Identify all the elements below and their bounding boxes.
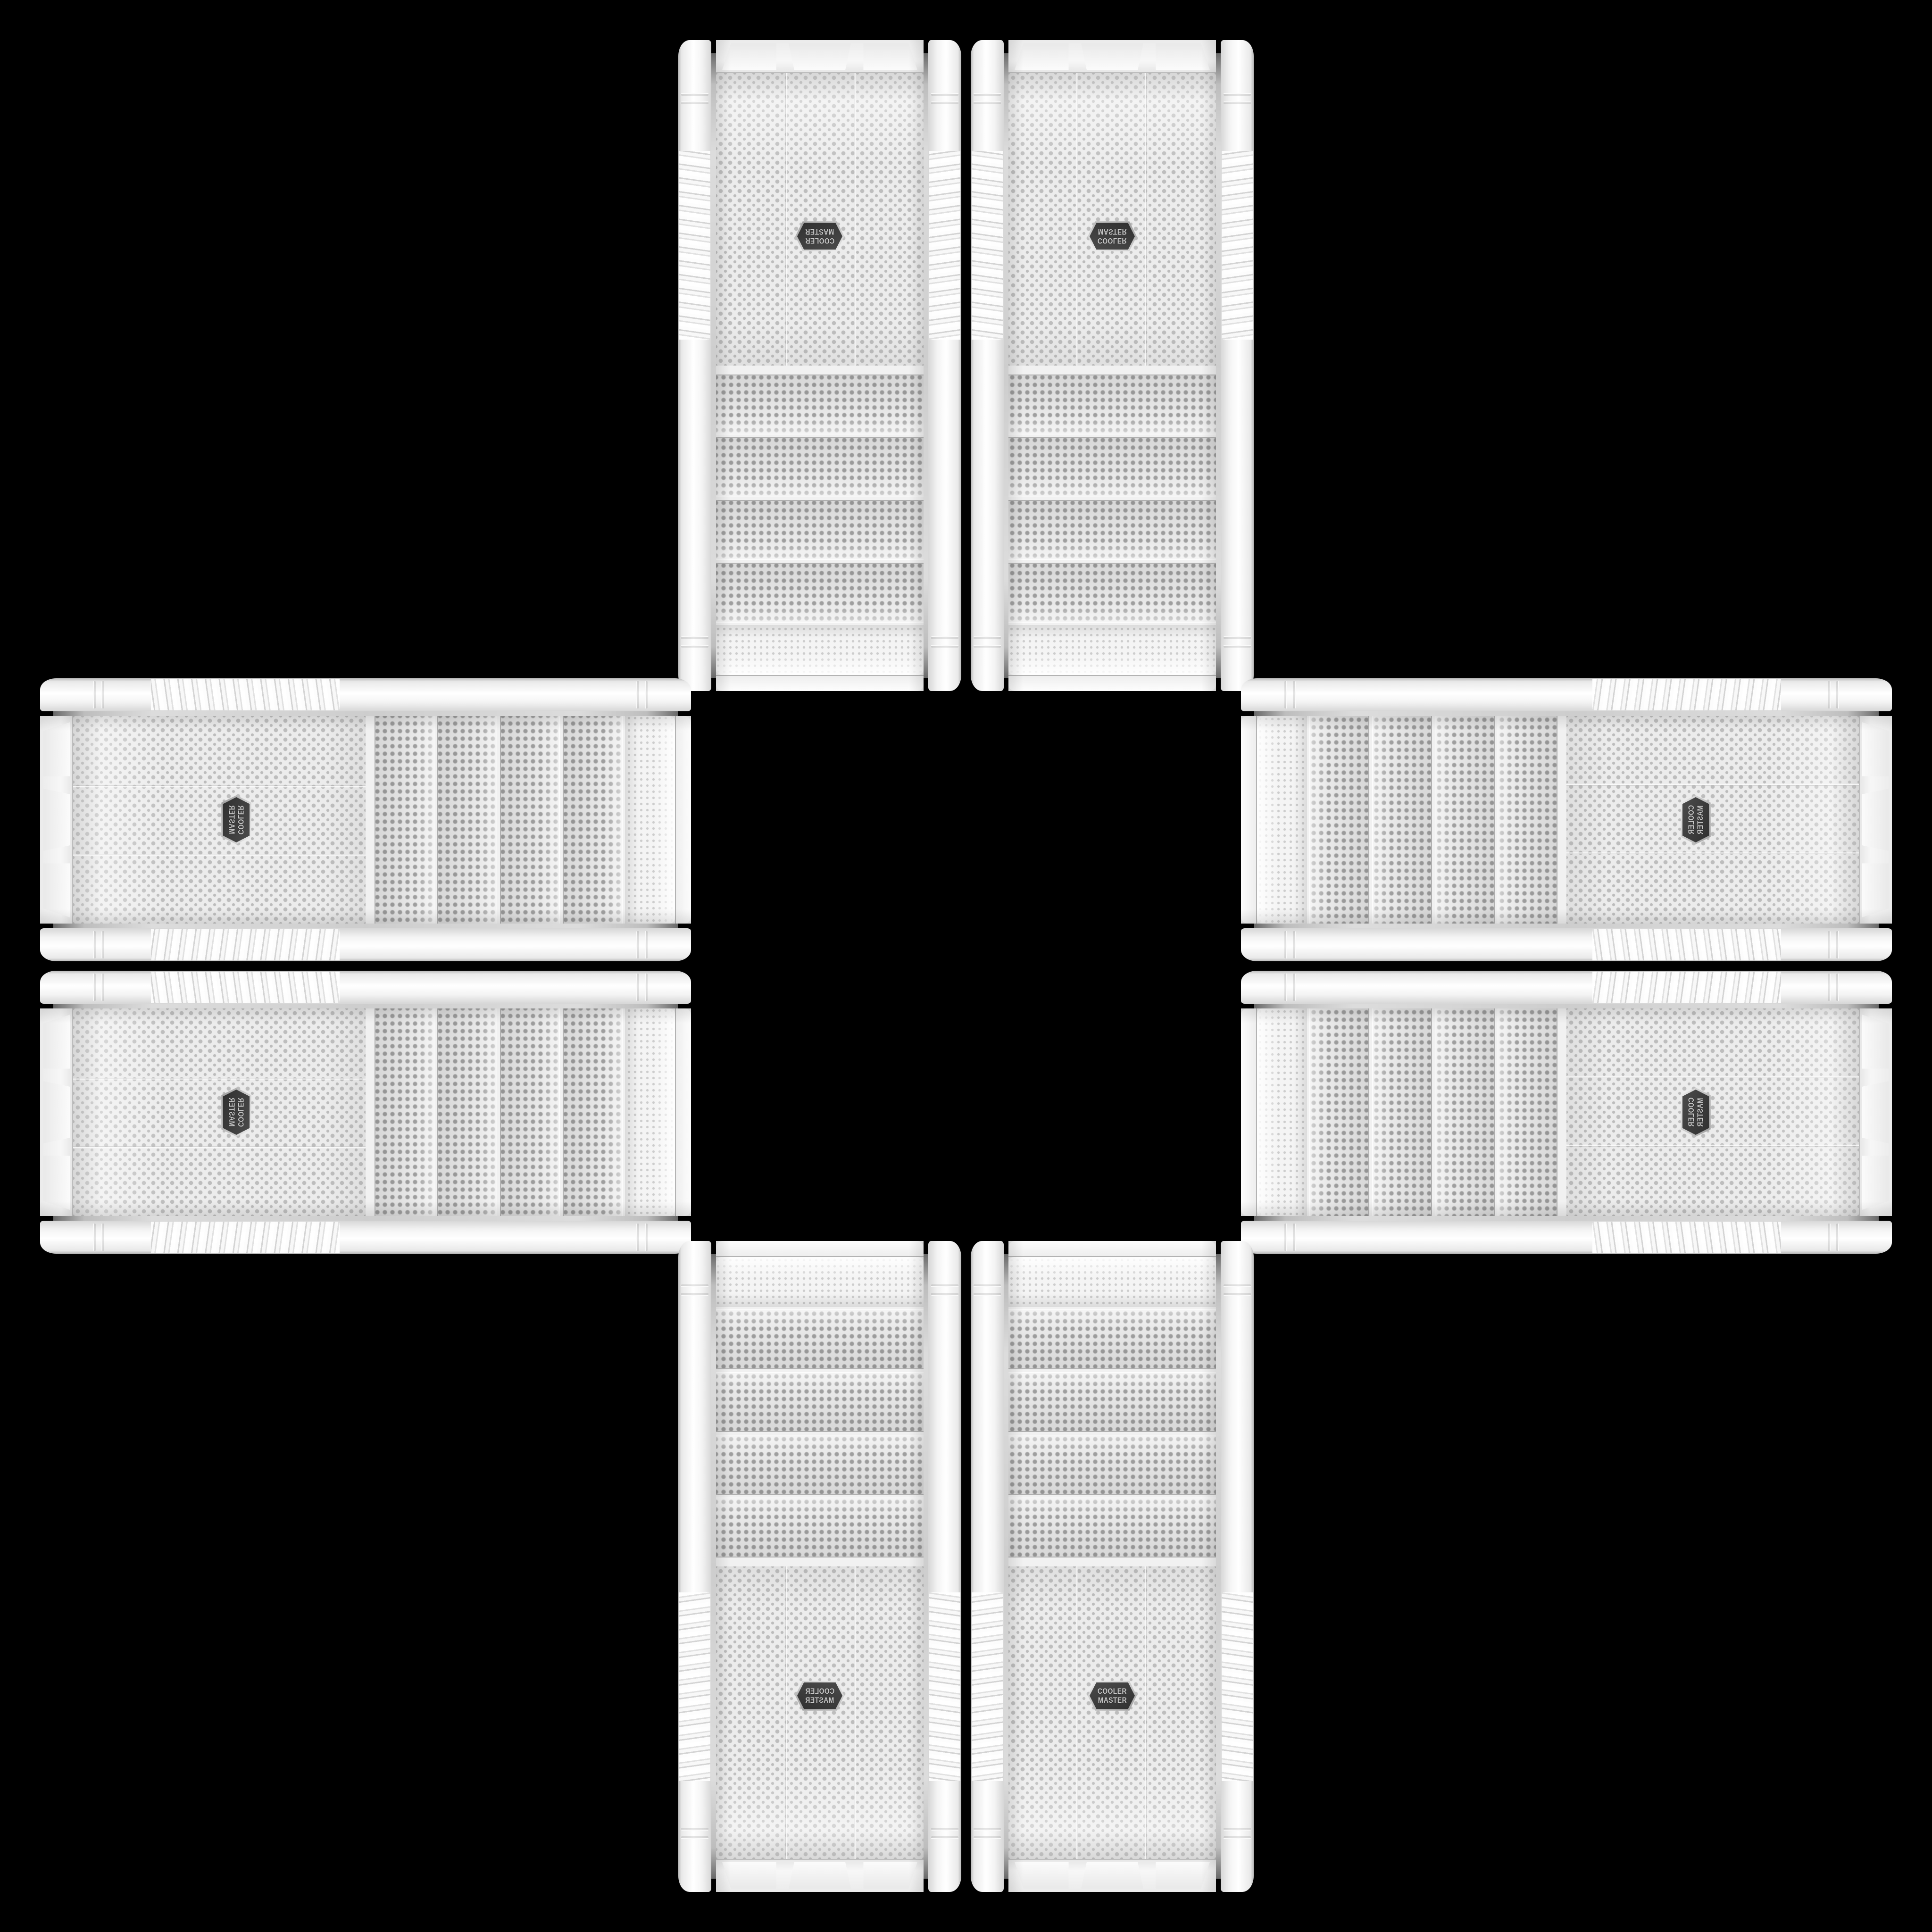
side-trim-right	[1221, 40, 1254, 691]
trim-groove	[93, 974, 96, 1001]
trim-groove	[931, 636, 958, 639]
bay-strip	[716, 375, 924, 434]
bottom-cap	[40, 1008, 73, 1216]
trim-groove	[101, 931, 104, 958]
trim-groove	[1224, 1284, 1251, 1287]
cap-facet	[1015, 1862, 1068, 1889]
front-panel: COOLER MASTER	[1241, 1008, 1892, 1216]
bottom-cap	[716, 1859, 924, 1892]
badge-text-line2: MASTER	[227, 1098, 236, 1126]
top-rim	[1241, 1008, 1257, 1216]
mesh-column-seam	[1076, 1566, 1078, 1860]
bay-strip	[1373, 716, 1431, 924]
chrome-seam-left	[53, 924, 678, 928]
cap-facet	[1862, 789, 1889, 851]
trim-groove	[636, 931, 639, 958]
trim-groove	[974, 1828, 1001, 1831]
chevron-ridges-icon	[151, 972, 340, 1003]
chrome-seam-right	[1254, 1216, 1879, 1221]
trim-groove	[1293, 931, 1296, 958]
badge-hexagon-icon: COOLER MASTER	[797, 221, 842, 251]
cap-facet	[1862, 1156, 1889, 1209]
slot-right-bottom: COOLER MASTER	[1241, 971, 1892, 1254]
badge-text-line1: COOLER	[236, 805, 245, 834]
badge-hexagon-icon: COOLER MASTER	[1681, 797, 1711, 842]
mesh-column-seam	[1566, 1144, 1860, 1147]
bay-strip	[375, 1008, 434, 1216]
chrome-seam-right	[1254, 924, 1879, 928]
badge-text-line1: COOLER	[1098, 236, 1127, 245]
chrome-seam-right	[1216, 1254, 1221, 1879]
chrome-seam-left	[924, 53, 928, 678]
side-trim-left	[40, 928, 691, 961]
bay-strip	[1008, 1310, 1216, 1368]
trim-groove	[1293, 1224, 1296, 1251]
top-rim	[716, 1241, 924, 1257]
cap-facet	[1081, 43, 1143, 70]
trim-groove	[931, 1293, 958, 1296]
bay-strip	[438, 716, 497, 924]
mesh-column-seam	[854, 1566, 856, 1860]
chevron-ridges-icon	[972, 1592, 1003, 1781]
badge-text-line1: COOLER	[805, 1687, 834, 1696]
chrome-seam-left	[1004, 53, 1008, 678]
mesh-column-seam	[72, 785, 366, 788]
pc-case-bottom-right: COOLER MASTER	[971, 1241, 1254, 1892]
badge-text-line2: MASTER	[805, 227, 834, 236]
trim-groove	[974, 1284, 1001, 1287]
trim-groove	[101, 681, 104, 708]
bay-strip	[1008, 501, 1216, 559]
badge-text-line2: MASTER	[805, 1696, 834, 1705]
cooler-master-badge: COOLER MASTER	[1088, 1679, 1137, 1713]
trim-groove	[974, 93, 1001, 96]
chevron-ridges-icon	[1592, 1222, 1781, 1253]
badge-hexagon-icon: COOLER MASTER	[1090, 1681, 1135, 1711]
trim-groove	[974, 101, 1001, 104]
product-collage-canvas: COOLER MASTER	[0, 0, 1932, 1932]
cap-facet	[1862, 1015, 1889, 1068]
trim-groove	[645, 1224, 648, 1251]
drive-bay-covers	[1008, 1307, 1216, 1566]
cooler-master-badge: COOLER MASTER	[1088, 219, 1137, 253]
top-rim	[1008, 1241, 1216, 1257]
cap-facet	[722, 1862, 776, 1889]
chevron-ridges-icon	[1592, 972, 1781, 1003]
chrome-seam-right	[53, 711, 678, 716]
chevron-ridges-icon	[151, 929, 340, 960]
mesh-column-seam	[72, 1078, 366, 1080]
trim-groove	[1224, 1836, 1251, 1839]
trim-groove	[931, 1828, 958, 1831]
bay-strip	[716, 1310, 924, 1368]
curved-mesh-band	[625, 716, 675, 924]
curved-mesh-band	[1257, 1008, 1307, 1216]
bay-strip	[564, 1008, 622, 1216]
cap-facet	[43, 1156, 70, 1209]
bay-strip	[716, 1498, 924, 1557]
bay-strip	[501, 1008, 559, 1216]
bay-strip	[564, 716, 622, 924]
front-panel: COOLER MASTER	[1241, 716, 1892, 924]
trim-groove	[1828, 931, 1831, 958]
badge-text-line2: MASTER	[1098, 1696, 1126, 1705]
curved-mesh-band	[625, 1008, 675, 1216]
chevron-ridges-icon	[1222, 151, 1253, 340]
slot-top-left: COOLER MASTER	[678, 40, 961, 691]
trim-groove	[93, 931, 96, 958]
side-trim-right	[40, 971, 691, 1004]
chevron-ridges-icon	[929, 1592, 960, 1781]
trim-groove	[931, 645, 958, 648]
trim-groove	[645, 974, 648, 1001]
pc-case-top-left: COOLER MASTER	[678, 40, 961, 691]
bottom-cap	[1008, 1859, 1216, 1892]
cap-facet	[863, 1862, 917, 1889]
cap-facet	[43, 1081, 70, 1143]
trim-groove	[681, 1836, 708, 1839]
drive-bay-covers	[1008, 366, 1216, 625]
trim-groove	[645, 681, 648, 708]
side-trim-left	[928, 1241, 961, 1892]
chrome-seam-left	[924, 1254, 928, 1879]
bay-strip	[716, 438, 924, 497]
cap-facet	[1862, 722, 1889, 776]
side-trim-right	[1221, 1241, 1254, 1892]
pc-case-right-top: COOLER MASTER	[1241, 678, 1892, 961]
fan-mesh-area: COOLER MASTER	[1566, 716, 1860, 924]
trim-groove	[636, 974, 639, 1001]
trim-groove	[931, 1284, 958, 1287]
bottom-cap	[1859, 716, 1892, 924]
badge-hexagon-icon: COOLER MASTER	[221, 1090, 251, 1135]
trim-groove	[931, 93, 958, 96]
bottom-cap	[1008, 40, 1216, 73]
badge-text-line1: COOLER	[805, 236, 834, 245]
chrome-seam-left	[1254, 1004, 1879, 1008]
cooler-master-badge: COOLER MASTER	[795, 1679, 844, 1713]
trim-groove	[1224, 93, 1251, 96]
chrome-seam-left	[53, 1216, 678, 1221]
trim-groove	[931, 1836, 958, 1839]
trim-groove	[1828, 1224, 1831, 1251]
mesh-column-seam	[1566, 1076, 1860, 1078]
mesh-column-seam	[854, 72, 856, 366]
fan-mesh-area: COOLER MASTER	[716, 72, 924, 366]
top-rim	[675, 716, 691, 924]
cap-facet	[789, 43, 851, 70]
front-panel: COOLER MASTER	[40, 716, 691, 924]
cap-facet	[43, 722, 70, 776]
cap-facet	[1081, 1862, 1143, 1889]
trim-groove	[93, 681, 96, 708]
side-trim-right	[1241, 1221, 1892, 1254]
chevron-ridges-icon	[679, 1592, 710, 1781]
bay-strip	[1373, 1008, 1431, 1216]
bay-strip	[1435, 1008, 1494, 1216]
mesh-column-seam	[785, 1566, 788, 1860]
side-trim-left	[971, 40, 1004, 691]
chrome-seam-right	[1216, 53, 1221, 678]
cap-facet	[1862, 1081, 1889, 1143]
drive-bay-covers	[366, 1008, 625, 1216]
side-trim-right	[678, 40, 711, 691]
fan-mesh-area: COOLER MASTER	[72, 716, 366, 924]
badge-text-line2: MASTER	[1098, 227, 1126, 236]
trim-groove	[1836, 1224, 1839, 1251]
cap-facet	[789, 1862, 851, 1889]
trim-groove	[974, 636, 1001, 639]
trim-groove	[1224, 645, 1251, 648]
curved-mesh-band	[1008, 625, 1216, 675]
pc-case-right-bottom: COOLER MASTER	[1241, 971, 1892, 1254]
chrome-seam-right	[53, 1004, 678, 1008]
fan-mesh-area: COOLER MASTER	[716, 1566, 924, 1860]
front-panel: COOLER MASTER	[1008, 40, 1216, 691]
badge-hexagon-icon: COOLER MASTER	[797, 1681, 842, 1711]
cooler-master-badge: COOLER MASTER	[219, 795, 253, 844]
fan-mesh-area: COOLER MASTER	[72, 1008, 366, 1216]
side-trim-left	[1241, 971, 1892, 1004]
trim-groove	[1836, 974, 1839, 1001]
trim-groove	[974, 1836, 1001, 1839]
trim-groove	[636, 1224, 639, 1251]
trim-groove	[1284, 931, 1287, 958]
top-rim	[1241, 716, 1257, 924]
trim-groove	[101, 974, 104, 1001]
drive-bay-covers	[1307, 716, 1566, 924]
trim-groove	[1293, 974, 1296, 1001]
trim-groove	[1284, 1224, 1287, 1251]
top-rim	[675, 1008, 691, 1216]
side-trim-left	[928, 40, 961, 691]
trim-groove	[1284, 974, 1287, 1001]
chrome-seam-right	[711, 53, 716, 678]
curved-mesh-band	[716, 1257, 924, 1307]
trim-groove	[1224, 636, 1251, 639]
mesh-column-seam	[1144, 1566, 1147, 1860]
trim-groove	[681, 1293, 708, 1296]
chevron-ridges-icon	[929, 151, 960, 340]
bay-strip	[1008, 564, 1216, 622]
trim-groove	[681, 101, 708, 104]
mesh-column-seam	[1566, 852, 1860, 854]
curved-mesh-band	[1257, 716, 1307, 924]
badge-hexagon-icon: COOLER MASTER	[1090, 221, 1135, 251]
trim-groove	[1224, 101, 1251, 104]
trim-groove	[1293, 681, 1296, 708]
trim-groove	[681, 636, 708, 639]
cooler-master-badge: COOLER MASTER	[1679, 1088, 1713, 1137]
bottom-cap	[716, 40, 924, 73]
mesh-column-seam	[1566, 783, 1860, 786]
slot-top-right: COOLER MASTER	[971, 40, 1254, 691]
slot-bottom-left: COOLER MASTER	[678, 1241, 961, 1892]
mesh-column-seam	[785, 72, 788, 366]
front-panel: COOLER MASTER	[716, 40, 924, 691]
badge-text-line1: COOLER	[1687, 1098, 1696, 1127]
mesh-column-seam	[72, 1146, 366, 1149]
trim-groove	[931, 101, 958, 104]
pc-case-bottom-left: COOLER MASTER	[678, 1241, 961, 1892]
cap-facet	[1862, 863, 1889, 917]
bay-strip	[1498, 1008, 1557, 1216]
cooler-master-badge: COOLER MASTER	[1679, 795, 1713, 844]
bay-strip	[1008, 1373, 1216, 1431]
curved-mesh-band	[1008, 1257, 1216, 1307]
bottom-cap	[1859, 1008, 1892, 1216]
front-panel: COOLER MASTER	[1008, 1241, 1216, 1892]
side-trim-right	[1241, 928, 1892, 961]
bay-strip	[1008, 1498, 1216, 1557]
bay-strip	[438, 1008, 497, 1216]
trim-groove	[681, 645, 708, 648]
trim-groove	[1284, 681, 1287, 708]
fan-mesh-area: COOLER MASTER	[1008, 72, 1216, 366]
trim-groove	[101, 1224, 104, 1251]
trim-groove	[636, 681, 639, 708]
bay-strip	[1310, 716, 1368, 924]
bottom-cap	[40, 716, 73, 924]
bay-strip	[1008, 1435, 1216, 1494]
curved-mesh-band	[716, 625, 924, 675]
badge-hexagon-icon: COOLER MASTER	[221, 797, 251, 842]
trim-groove	[1836, 931, 1839, 958]
bay-strip	[1498, 716, 1557, 924]
bay-strip	[1008, 375, 1216, 434]
chevron-ridges-icon	[1592, 679, 1781, 710]
bay-strip	[375, 716, 434, 924]
fan-mesh-area: COOLER MASTER	[1008, 1566, 1216, 1860]
chevron-ridges-icon	[1222, 1592, 1253, 1781]
cap-facet	[43, 863, 70, 917]
badge-text-line2: MASTER	[227, 805, 236, 834]
slot-right-top: COOLER MASTER	[1241, 678, 1892, 961]
slot-left-bottom: COOLER MASTER	[40, 971, 691, 1254]
top-rim	[1008, 675, 1216, 691]
badge-text-line2: MASTER	[1696, 1098, 1705, 1126]
chevron-ridges-icon	[679, 151, 710, 340]
top-rim	[716, 675, 924, 691]
chevron-ridges-icon	[151, 1222, 340, 1253]
bay-strip	[1310, 1008, 1368, 1216]
side-trim-right	[40, 678, 691, 711]
badge-text-line2: MASTER	[1696, 805, 1705, 834]
cap-facet	[43, 1015, 70, 1068]
pc-case-top-right: COOLER MASTER	[971, 40, 1254, 691]
side-trim-right	[678, 1241, 711, 1892]
fan-mesh-area: COOLER MASTER	[1566, 1008, 1860, 1216]
drive-bay-covers	[366, 716, 625, 924]
trim-groove	[681, 93, 708, 96]
side-trim-left	[1241, 678, 1892, 711]
trim-groove	[1828, 681, 1831, 708]
bay-strip	[716, 501, 924, 559]
mesh-column-seam	[72, 854, 366, 856]
badge-hexagon-icon: COOLER MASTER	[1681, 1090, 1711, 1135]
chrome-seam-left	[1004, 1254, 1008, 1879]
trim-groove	[681, 1828, 708, 1831]
bay-strip	[1008, 438, 1216, 497]
page: { "background_color": "#000000", "badge"…	[0, 0, 1932, 1932]
trim-groove	[974, 645, 1001, 648]
trim-groove	[681, 1284, 708, 1287]
pc-case-left-top: COOLER MASTER	[40, 678, 691, 961]
pc-case-left-bottom: COOLER MASTER	[40, 971, 691, 1254]
bay-strip	[501, 716, 559, 924]
chrome-seam-left	[1254, 711, 1879, 716]
chrome-seam-right	[711, 1254, 716, 1879]
mesh-column-seam	[1076, 72, 1078, 366]
trim-groove	[1224, 1828, 1251, 1831]
cap-facet	[1015, 43, 1068, 70]
trim-groove	[1836, 681, 1839, 708]
front-panel: COOLER MASTER	[40, 1008, 691, 1216]
trim-groove	[1828, 974, 1831, 1001]
chevron-ridges-icon	[1592, 929, 1781, 960]
side-trim-left	[40, 1221, 691, 1254]
trim-groove	[1224, 1293, 1251, 1296]
slot-left-top: COOLER MASTER	[40, 678, 691, 961]
mesh-column-seam	[1144, 72, 1147, 366]
chevron-ridges-icon	[972, 151, 1003, 340]
side-trim-left	[971, 1241, 1004, 1892]
cooler-master-badge: COOLER MASTER	[795, 219, 844, 253]
cap-facet	[1156, 1862, 1209, 1889]
slot-bottom-right: COOLER MASTER	[971, 1241, 1254, 1892]
cap-facet	[43, 789, 70, 851]
bay-strip	[1435, 716, 1494, 924]
drive-bay-covers	[1307, 1008, 1566, 1216]
bay-strip	[716, 1435, 924, 1494]
trim-groove	[645, 931, 648, 958]
bay-strip	[716, 1373, 924, 1431]
trim-groove	[93, 1224, 96, 1251]
badge-text-line1: COOLER	[1098, 1687, 1127, 1696]
cap-facet	[1156, 43, 1209, 70]
cap-facet	[863, 43, 917, 70]
bay-strip	[716, 564, 924, 622]
front-panel: COOLER MASTER	[716, 1241, 924, 1892]
trim-groove	[974, 1293, 1001, 1296]
drive-bay-covers	[716, 1307, 924, 1566]
badge-text-line1: COOLER	[1687, 805, 1696, 834]
cap-facet	[722, 43, 776, 70]
cooler-master-badge: COOLER MASTER	[219, 1088, 253, 1137]
badge-text-line1: COOLER	[236, 1098, 245, 1127]
drive-bay-covers	[716, 366, 924, 625]
chevron-ridges-icon	[151, 679, 340, 710]
